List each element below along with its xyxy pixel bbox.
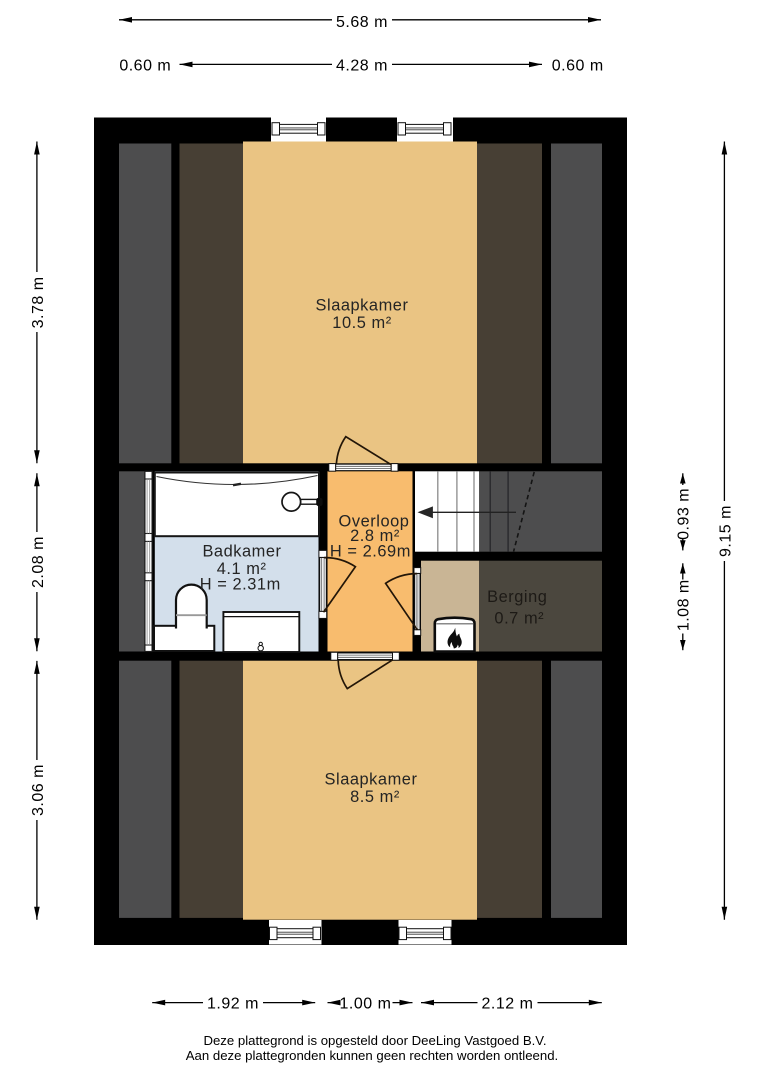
svg-text:4.28 m: 4.28 m — [336, 57, 388, 74]
svg-text:1.92 m: 1.92 m — [207, 995, 259, 1012]
svg-text:3.06 m: 3.06 m — [30, 764, 47, 816]
svg-text:1.00 m: 1.00 m — [340, 995, 392, 1012]
svg-text:2.08 m: 2.08 m — [30, 536, 47, 588]
svg-text:3.78 m: 3.78 m — [30, 276, 47, 328]
svg-text:5.68 m: 5.68 m — [336, 14, 388, 31]
svg-text:8.5 m²: 8.5 m² — [350, 788, 400, 806]
svg-text:9.15 m: 9.15 m — [717, 505, 734, 557]
svg-text:0.93 m: 0.93 m — [676, 488, 693, 540]
svg-text:Aan deze plattegronden kunnen: Aan deze plattegronden kunnen geen recht… — [186, 1048, 558, 1063]
svg-text:0.60 m: 0.60 m — [119, 57, 171, 74]
svg-text:2.12 m: 2.12 m — [482, 995, 534, 1012]
svg-text:10.5 m²: 10.5 m² — [332, 314, 391, 332]
svg-text:H = 2.69m: H = 2.69m — [330, 543, 411, 561]
svg-text:Badkamer: Badkamer — [202, 542, 281, 560]
svg-text:1.08 m: 1.08 m — [676, 579, 693, 631]
svg-text:Slaapkamer: Slaapkamer — [316, 296, 409, 314]
svg-text:0.7 m²: 0.7 m² — [494, 610, 544, 628]
svg-text:0.60 m: 0.60 m — [552, 57, 604, 74]
svg-text:H = 2.31m: H = 2.31m — [200, 575, 281, 593]
svg-text:Berging: Berging — [487, 588, 547, 606]
svg-text:Slaapkamer: Slaapkamer — [325, 770, 418, 788]
svg-text:Deze plattegrond is opgesteld: Deze plattegrond is opgesteld door DeeLi… — [203, 1033, 546, 1048]
